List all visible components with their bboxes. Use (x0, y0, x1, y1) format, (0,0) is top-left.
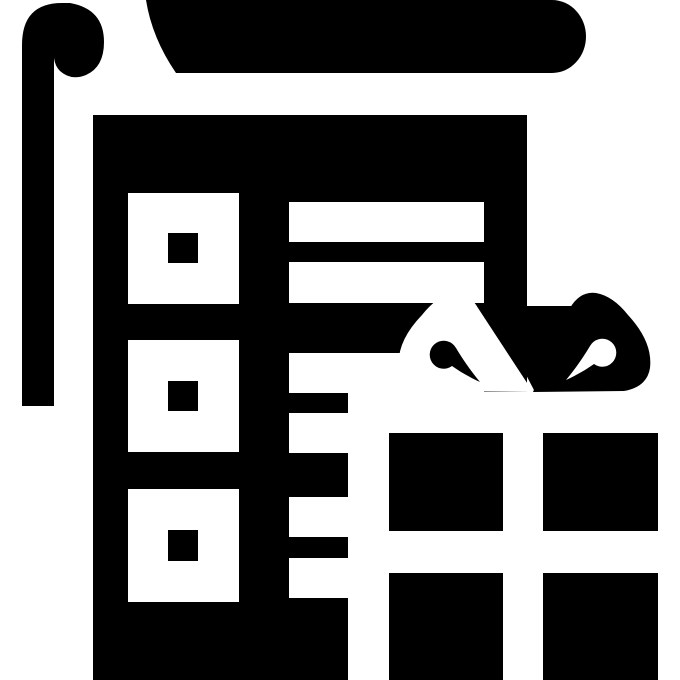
icon-canvas (0, 0, 680, 680)
square-pattern (128, 193, 239, 602)
pattern-square-dot (168, 530, 198, 561)
paper-roll-icon (146, 0, 586, 73)
gift-box-quadrant (543, 433, 658, 531)
gift-box-quadrant (389, 573, 503, 680)
pattern-square-dot (168, 233, 198, 263)
gift-box-quadrant (389, 433, 503, 531)
paper-curl-icon (22, 3, 104, 406)
wrapping-paper-gift-icon (0, 0, 680, 680)
gift-box-quadrant (543, 573, 658, 680)
pattern-square-dot (168, 381, 198, 411)
pattern-stripe (289, 202, 484, 242)
